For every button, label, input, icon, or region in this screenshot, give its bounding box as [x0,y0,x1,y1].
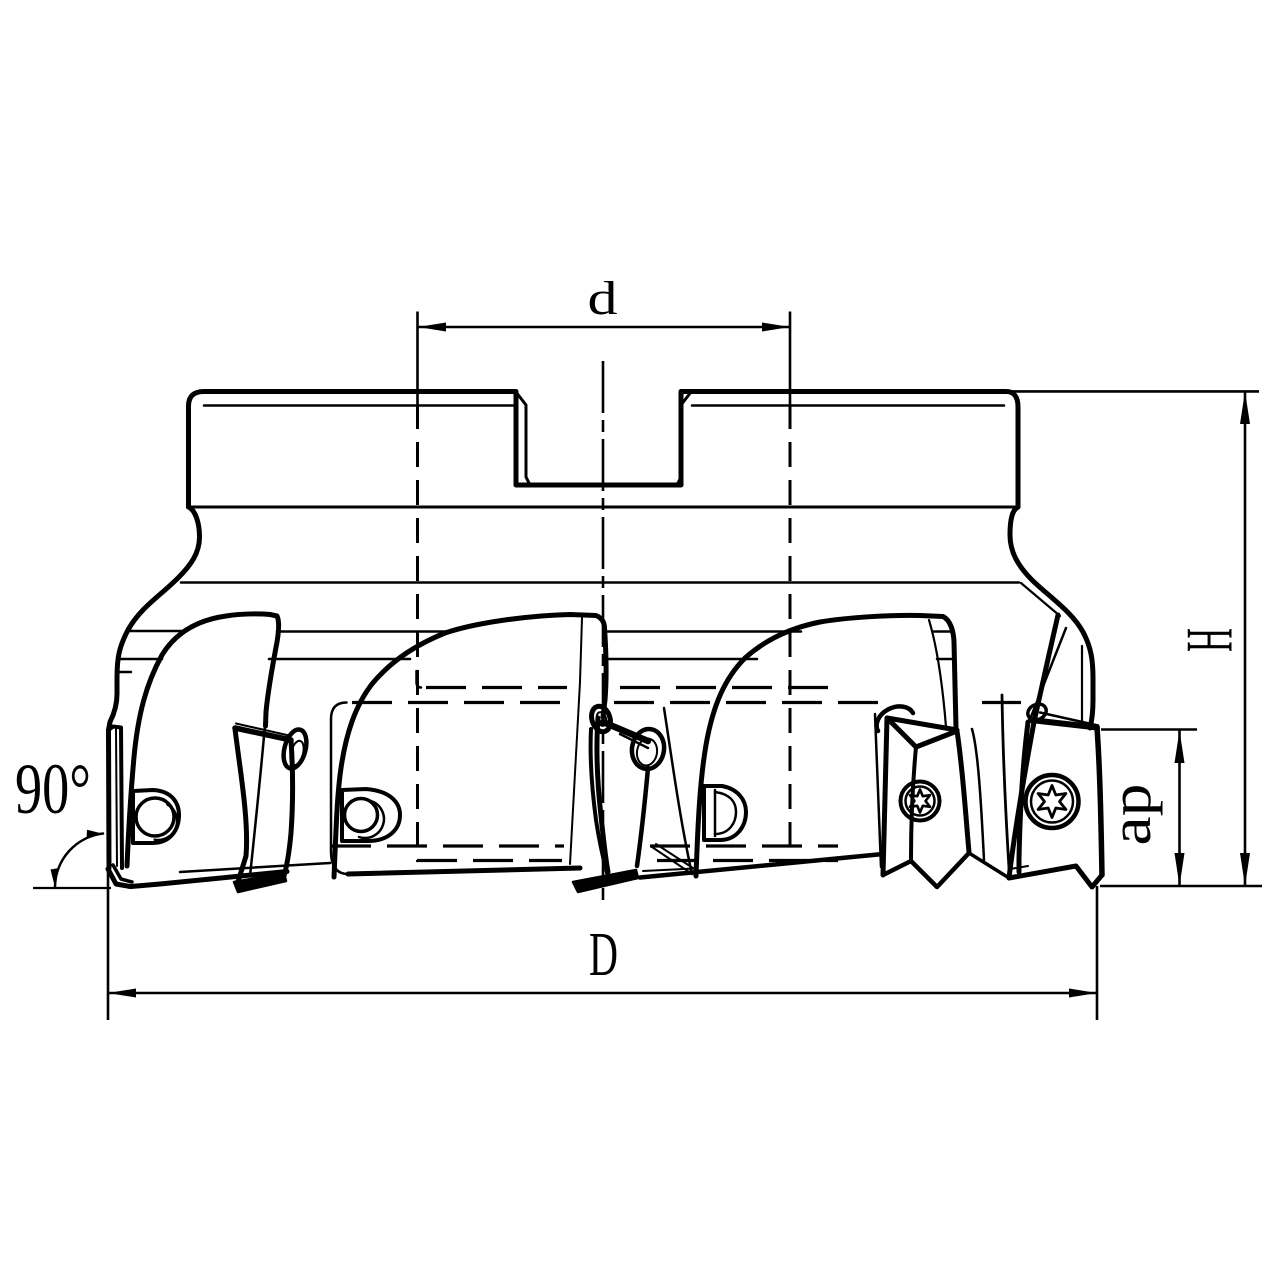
svg-text:d: d [588,272,618,325]
svg-text:D: D [589,921,618,989]
svg-text:ap: ap [1098,784,1163,846]
svg-text:H: H [1173,628,1247,652]
svg-text:90°: 90° [15,749,91,829]
